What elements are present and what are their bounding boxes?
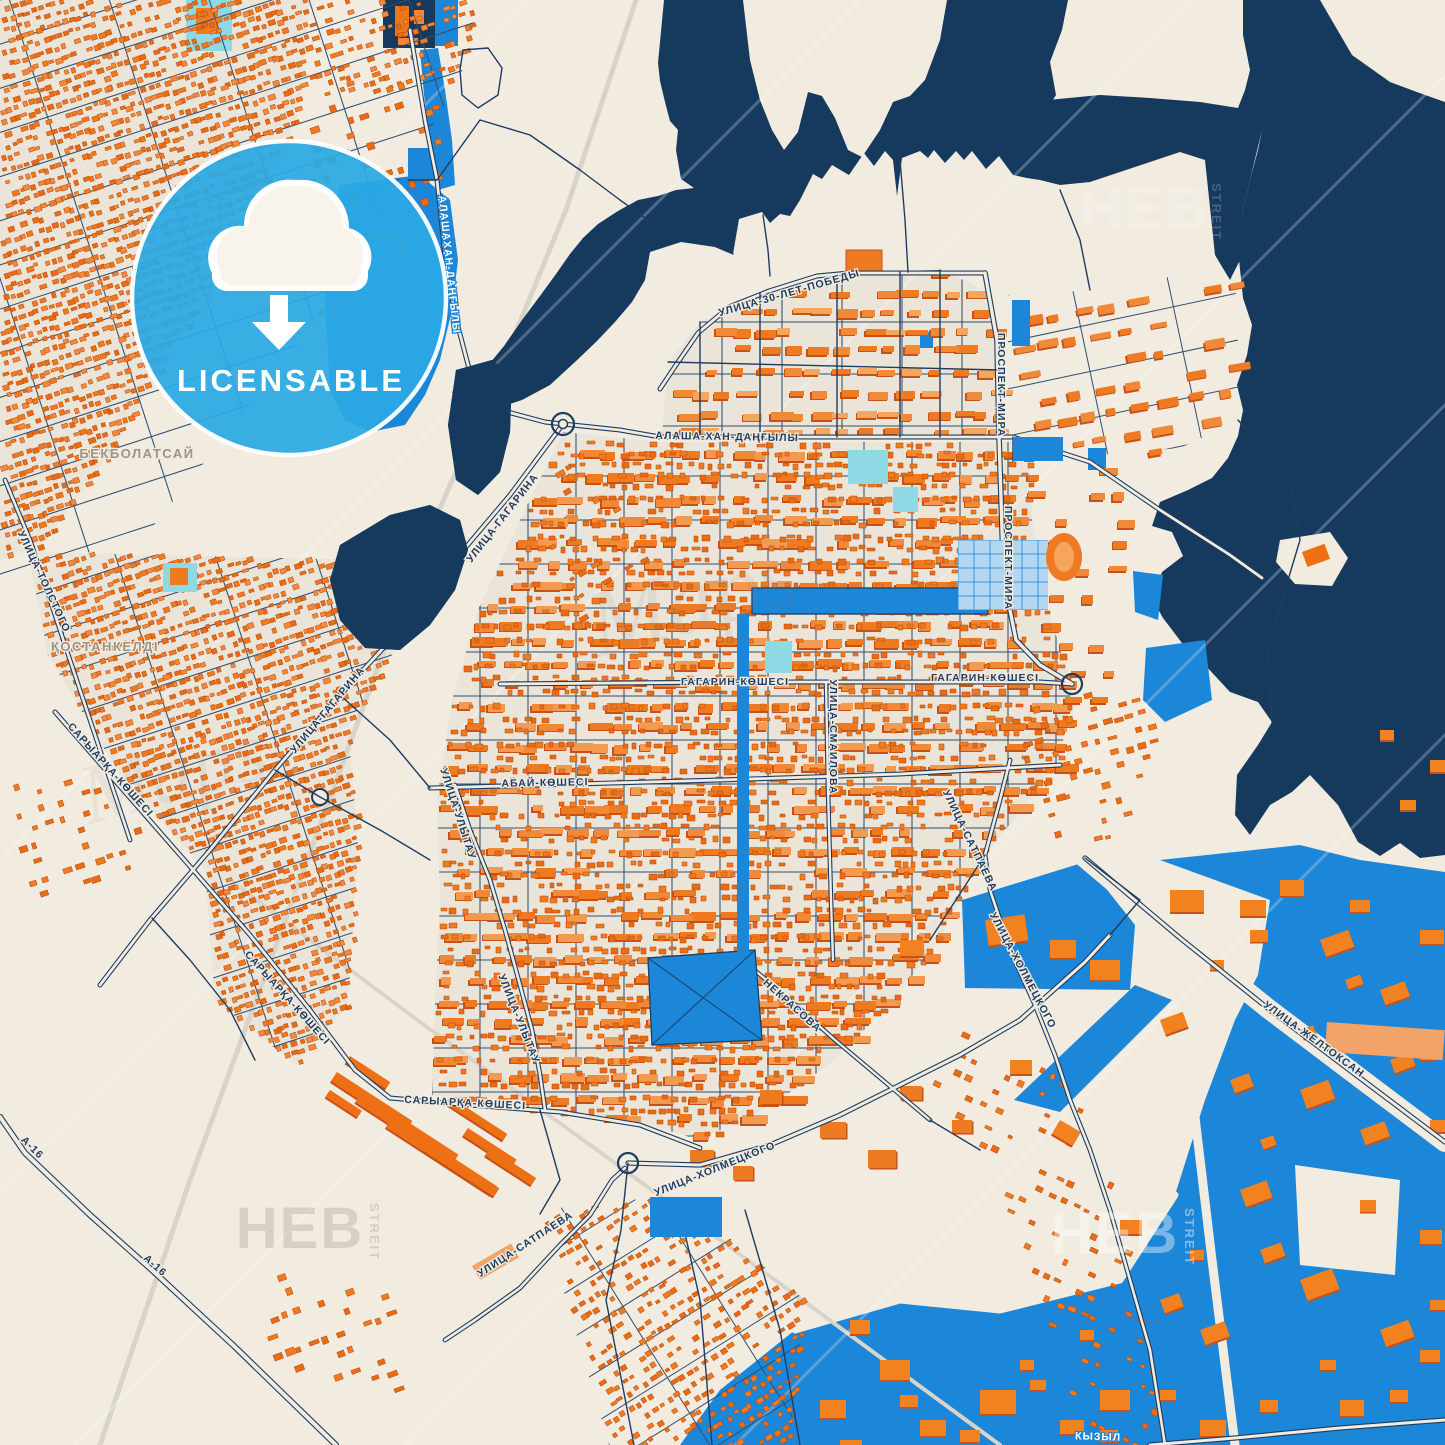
svg-text:АБАЙ-КӨШЕСІ: АБАЙ-КӨШЕСІ	[501, 775, 588, 790]
svg-text:STREIT: STREIT	[367, 1203, 382, 1261]
svg-text:БЕКБОЛАТСАЙ: БЕКБОЛАТСАЙ	[79, 446, 194, 461]
svg-text:HEB: HEB	[236, 1196, 364, 1261]
svg-text:STREIT: STREIT	[1182, 1208, 1197, 1266]
svg-text:КЫЗЫЛ: КЫЗЫЛ	[1075, 1430, 1121, 1444]
svg-text:ГАГАРИН-КӨШЕСІ: ГАГАРИН-КӨШЕСІ	[931, 672, 1039, 684]
svg-text:STREIT: STREIT	[1209, 183, 1224, 241]
svg-text:АЛАША-ХАН-ДАҢҒЫЛЫ: АЛАША-ХАН-ДАҢҒЫЛЫ	[655, 430, 799, 445]
svg-text:LICENSABLE: LICENSABLE	[177, 363, 405, 398]
svg-text:ПРОСПЕКТ-МИРА: ПРОСПЕКТ-МИРА	[1002, 506, 1014, 610]
svg-text:ҚОСТАНКЕЛДІ: ҚОСТАНКЕЛДІ	[51, 639, 159, 654]
svg-text:HEB: HEB	[1081, 176, 1209, 241]
svg-text:ГАГАРИН-КӨШЕСІ: ГАГАРИН-КӨШЕСІ	[681, 676, 789, 688]
svg-text:HEB: HEB	[1051, 1201, 1179, 1266]
svg-text:УЛИЦА-СМАИЛОВА: УЛИЦА-СМАИЛОВА	[827, 679, 839, 794]
svg-text:ПРОСПЕКТ-МИРА: ПРОСПЕКТ-МИРА	[995, 333, 1007, 437]
